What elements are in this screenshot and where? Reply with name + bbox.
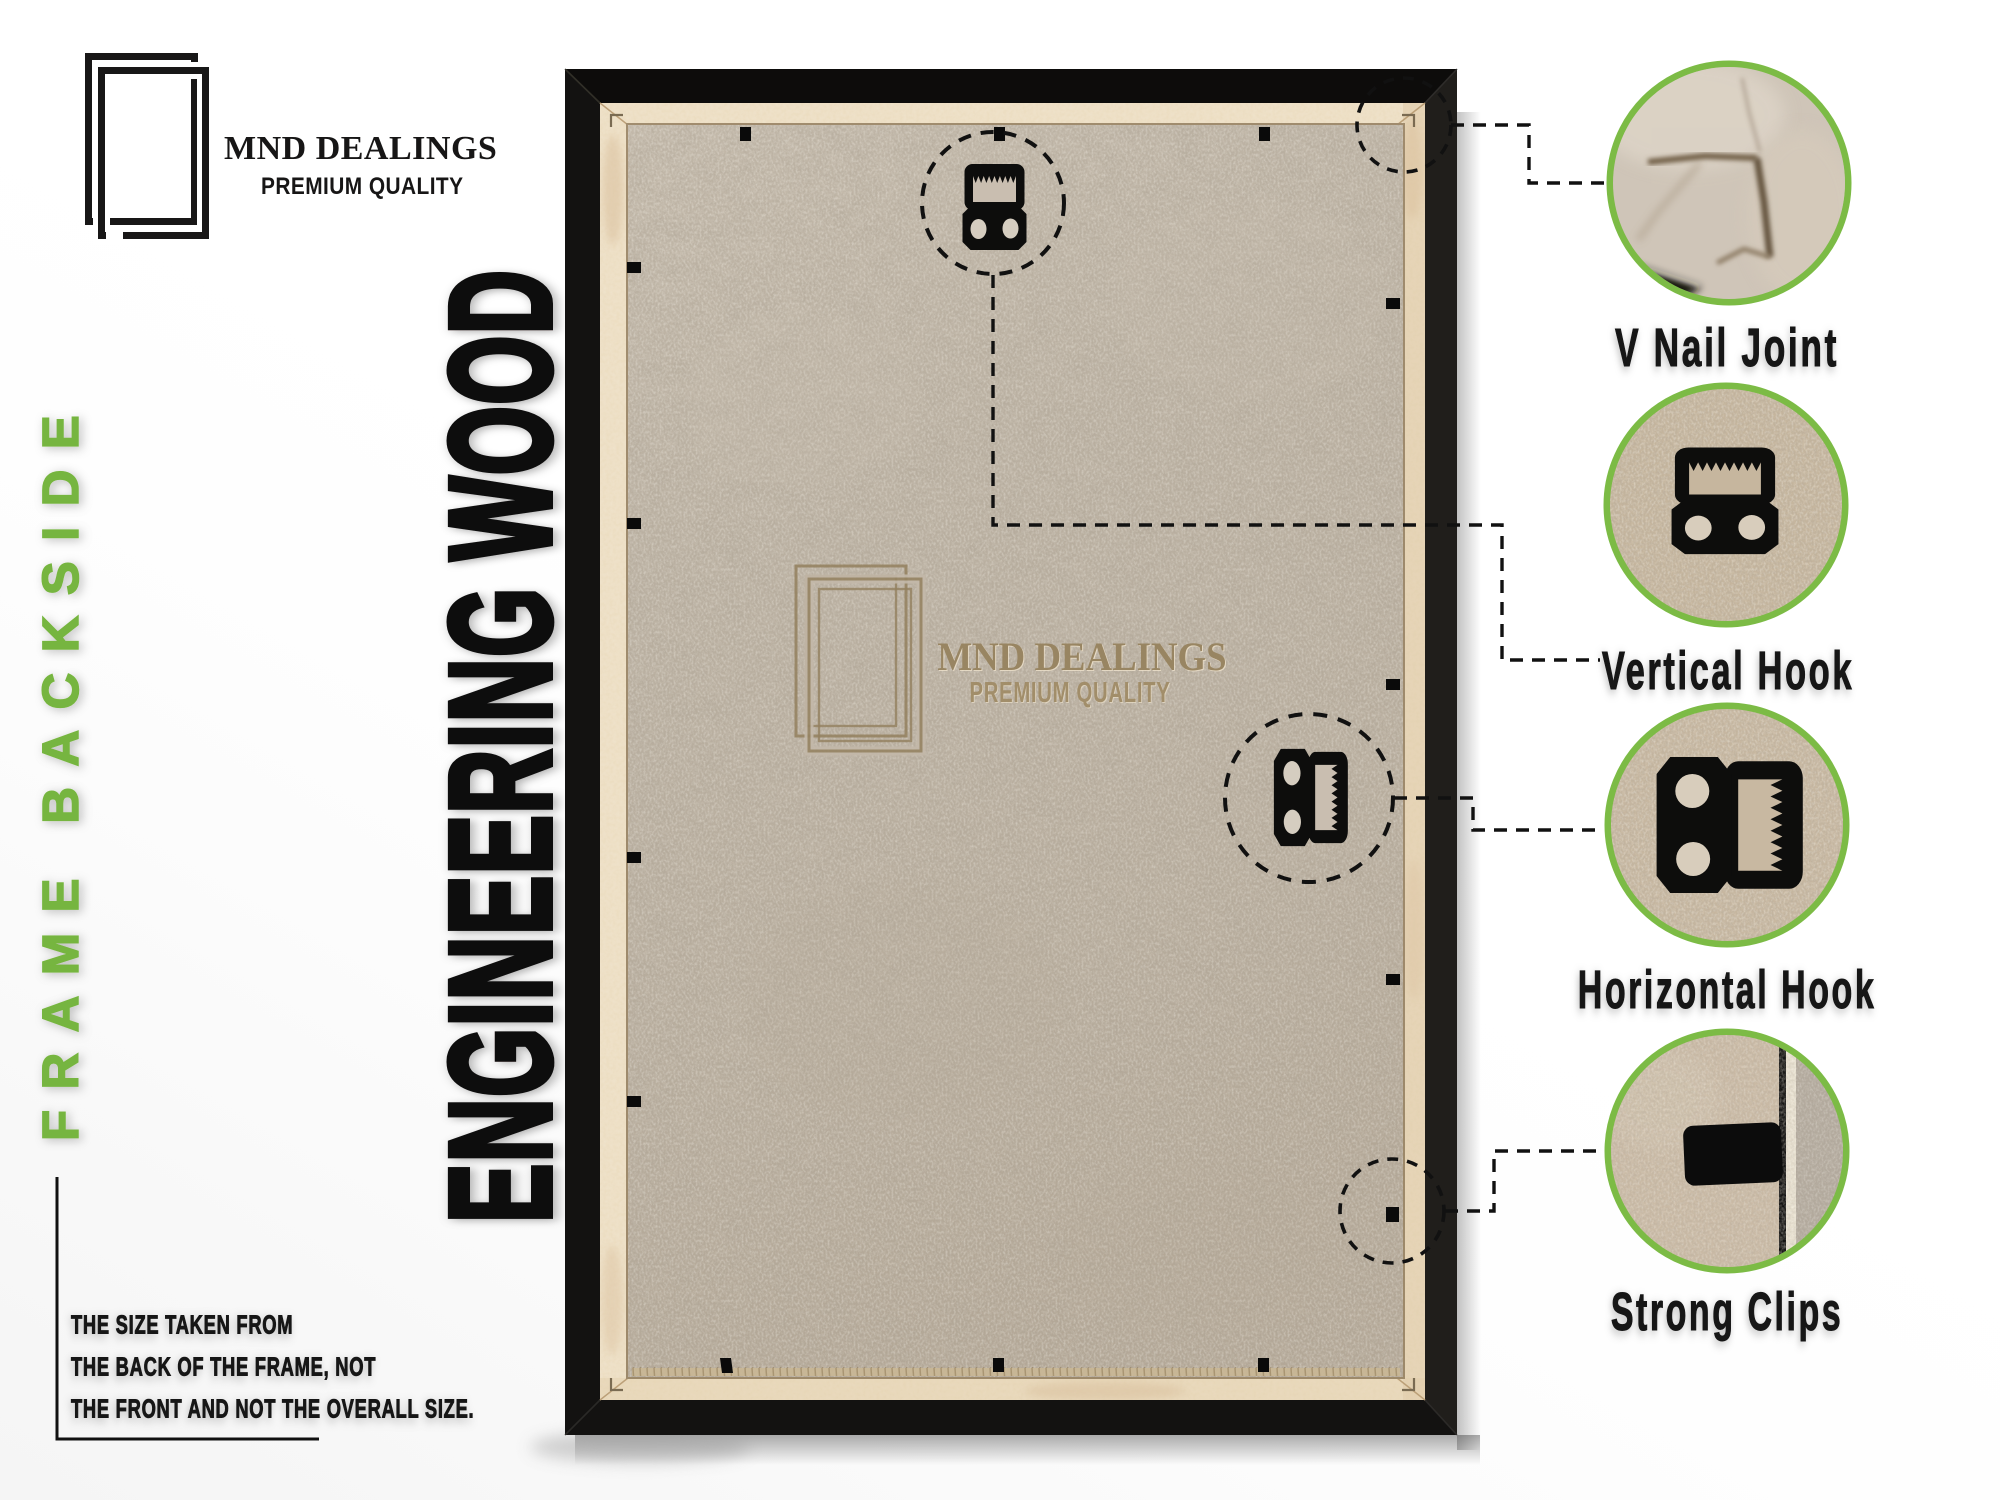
svg-text:MND DEALINGS: MND DEALINGS <box>937 636 1226 680</box>
svg-text:THE FRONT AND NOT THE OVERALL: THE FRONT AND NOT THE OVERALL SIZE. <box>71 1395 474 1424</box>
svg-text:Strong Clips: Strong Clips <box>1611 1281 1843 1342</box>
svg-text:MND DEALINGS: MND DEALINGS <box>224 130 497 167</box>
svg-text:Vertical Hook: Vertical Hook <box>1602 640 1854 701</box>
svg-text:PREMIUM QUALITY: PREMIUM QUALITY <box>970 677 1171 709</box>
svg-text:Horizontal Hook: Horizontal Hook <box>1578 959 1877 1020</box>
svg-text:PREMIUM QUALITY: PREMIUM QUALITY <box>261 173 463 200</box>
svg-text:ENGINEERING WOOD: ENGINEERING WOOD <box>421 269 581 1223</box>
svg-text:FRAME BACKSIDE: FRAME BACKSIDE <box>32 395 89 1141</box>
svg-text:V Nail Joint: V Nail Joint <box>1615 317 1839 377</box>
svg-text:THE SIZE TAKEN FROM: THE SIZE TAKEN FROM <box>71 1311 293 1340</box>
svg-text:THE BACK OF THE FRAME, NOT: THE BACK OF THE FRAME, NOT <box>71 1353 376 1382</box>
